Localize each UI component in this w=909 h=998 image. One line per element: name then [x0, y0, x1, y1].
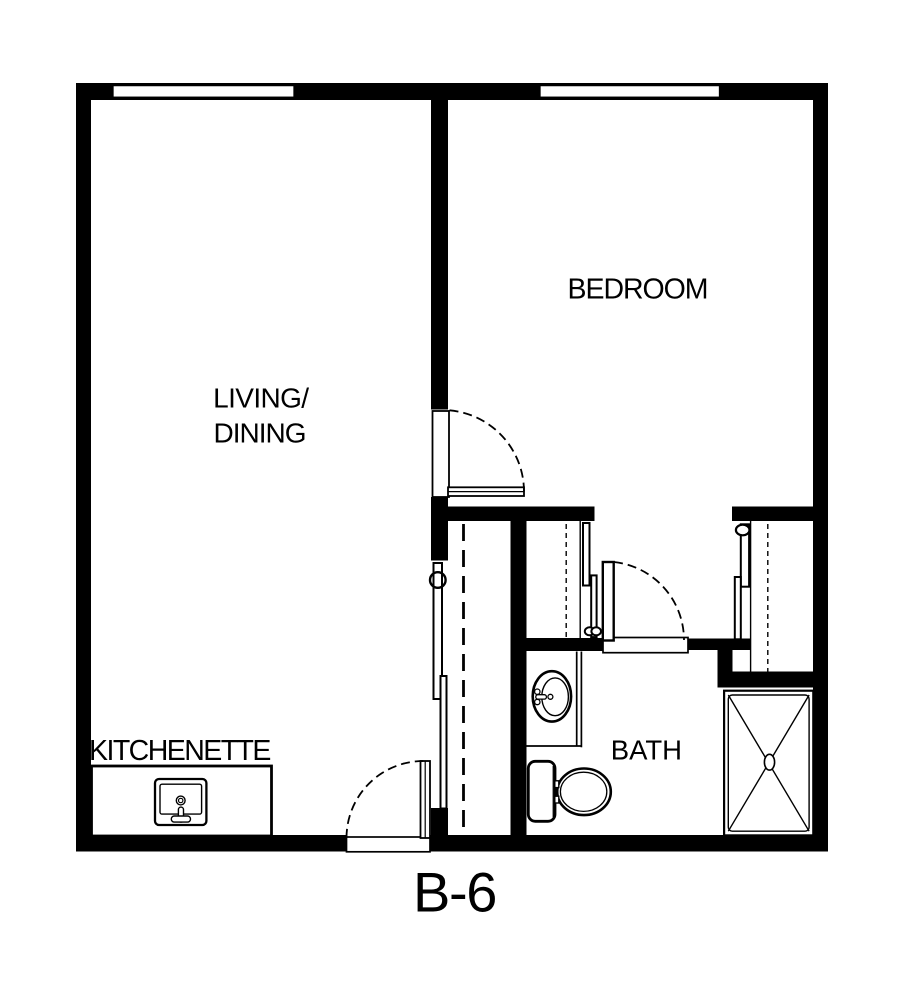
svg-text:KITCHENETTE: KITCHENETTE: [89, 735, 270, 767]
svg-text:B-6: B-6: [413, 860, 496, 923]
svg-text:BEDROOM: BEDROOM: [568, 274, 708, 306]
svg-text:DINING: DINING: [214, 417, 306, 448]
svg-text:LIVING/: LIVING/: [213, 383, 309, 414]
svg-text:BATH: BATH: [611, 735, 682, 766]
